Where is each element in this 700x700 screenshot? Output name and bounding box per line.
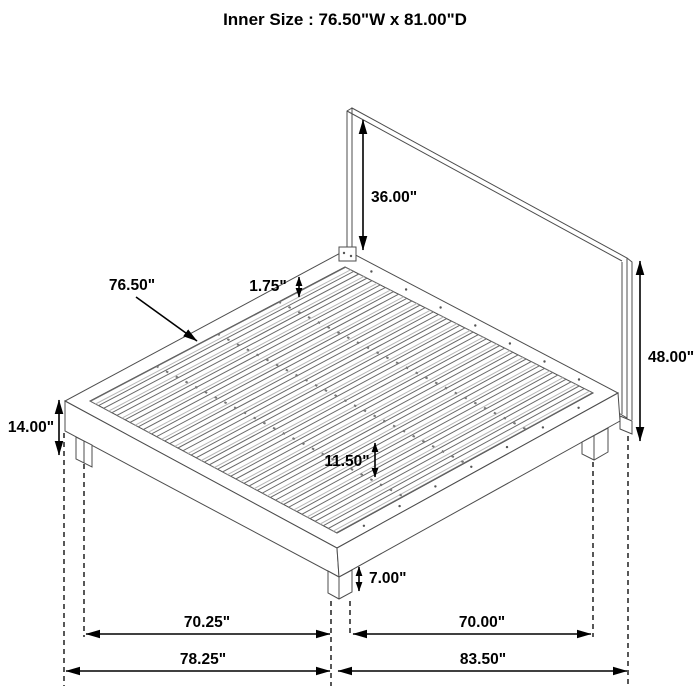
screw-dot xyxy=(398,505,400,507)
headboard-height-label: 36.00" xyxy=(371,189,417,206)
screw-dot xyxy=(439,306,441,308)
leg-span-width-label: 70.25" xyxy=(184,614,230,631)
overall-depth-label: 83.50" xyxy=(460,651,506,668)
overall-height-label: 48.00" xyxy=(648,349,694,366)
slat-length-leader-arrow xyxy=(136,297,197,341)
screw-dot xyxy=(542,426,544,428)
screw-dot xyxy=(578,378,580,380)
screw-dot xyxy=(370,270,372,272)
slat-length-label: 76.50" xyxy=(109,277,155,294)
screw-dot xyxy=(363,525,365,527)
screw-dot xyxy=(543,360,545,362)
slat-spacing-label: 1.75" xyxy=(249,278,287,295)
clearance-label: 11.50" xyxy=(324,453,369,470)
diagram-title: Inner Size : 76.50"W x 81.00"D xyxy=(223,10,467,29)
diagram: Inner Size : 76.50"W x 81.00"D xyxy=(0,0,700,700)
screw-dot xyxy=(509,342,511,344)
screw-dot xyxy=(506,446,508,448)
screw-dot xyxy=(405,288,407,290)
overall-width-label: 78.25" xyxy=(180,651,226,668)
headboard-leg xyxy=(620,416,632,434)
screw-dot xyxy=(434,485,436,487)
platform-height-label: 14.00" xyxy=(8,419,54,436)
screw-dot xyxy=(470,466,472,468)
bed-dimension-drawing: Inner Size : 76.50"W x 81.00"D xyxy=(0,0,700,700)
screw-dot xyxy=(474,324,476,326)
corner-bracket xyxy=(339,247,356,261)
leg-span-depth-label: 70.00" xyxy=(459,614,505,631)
screw-dot xyxy=(577,407,579,409)
leg-height-label: 7.00" xyxy=(369,570,407,587)
